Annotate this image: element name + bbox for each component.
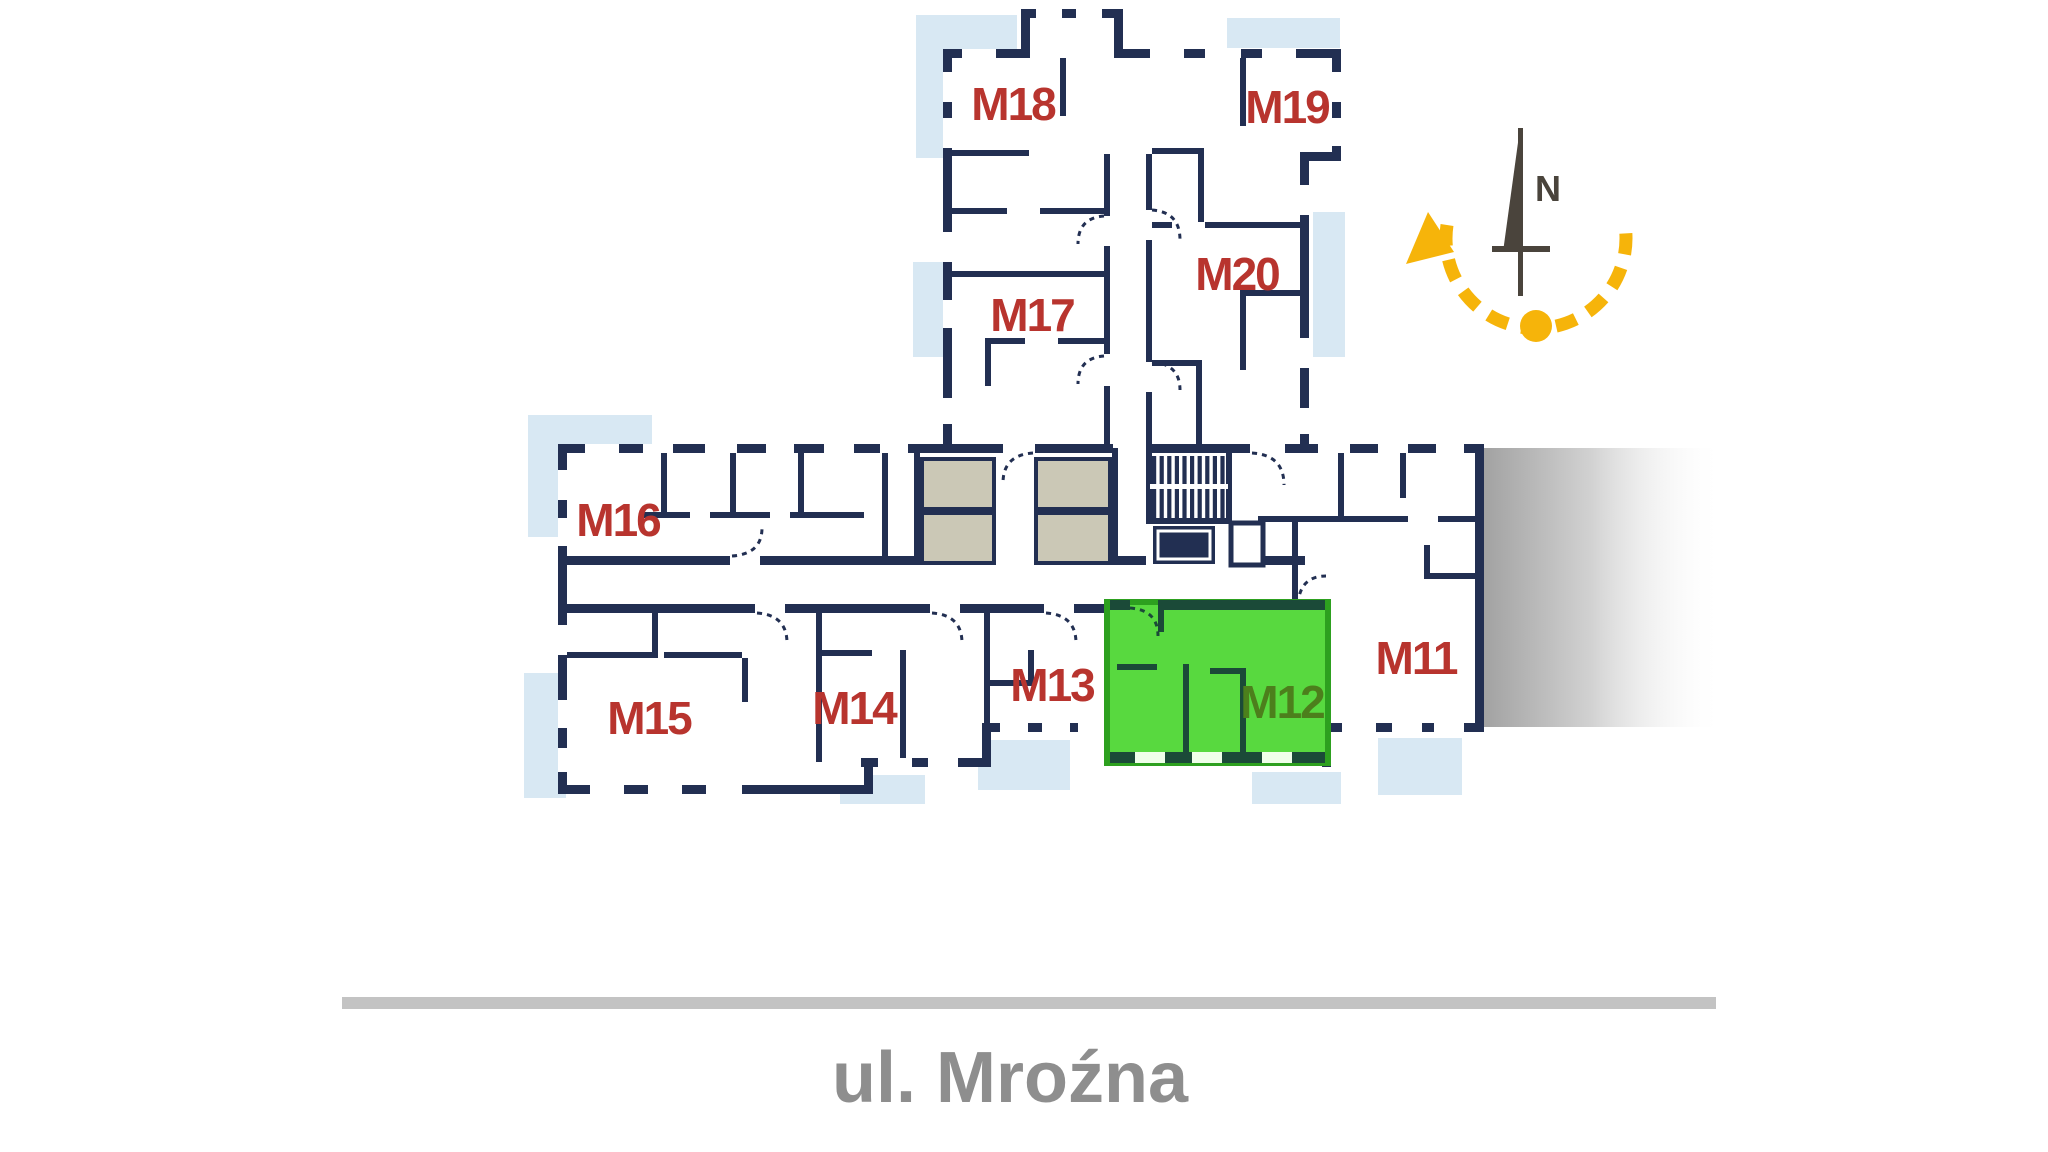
- floor-plan-page: M18 M19 M17 M20 M16 M15 M14 M13 M12 M11 …: [0, 0, 2048, 1152]
- elevator-shaft: [1036, 513, 1110, 563]
- street-name: ul. Mroźna: [832, 1038, 1189, 1118]
- balcony: [1378, 738, 1462, 795]
- unit-label-m18[interactable]: M18: [971, 78, 1056, 130]
- compass-dot: [1520, 310, 1552, 342]
- balcony: [1313, 212, 1345, 357]
- unit-label-m12[interactable]: M12: [1240, 676, 1324, 728]
- north-label: N: [1535, 168, 1561, 209]
- elevator-shaft: [1036, 459, 1110, 509]
- balcony: [913, 262, 943, 357]
- compass: N: [1406, 128, 1626, 342]
- street-line: [342, 997, 1716, 1009]
- unit-label-m16[interactable]: M16: [576, 494, 660, 546]
- elevator-cab-icon: [1153, 523, 1263, 565]
- floor-plan: M18 M19 M17 M20 M16 M15 M14 M13 M12 M11 …: [0, 0, 2048, 1152]
- balcony: [1252, 772, 1341, 804]
- building-shadow: [1484, 448, 1724, 727]
- elevator-shaft: [922, 513, 994, 563]
- street: ul. Mroźna: [342, 997, 1716, 1118]
- unit-label-m15[interactable]: M15: [607, 692, 692, 744]
- unit-label-m13[interactable]: M13: [1010, 659, 1094, 711]
- unit-label-m11[interactable]: M11: [1376, 632, 1458, 684]
- unit-label-m17[interactable]: M17: [990, 289, 1074, 341]
- unit-label-m14[interactable]: M14: [812, 682, 898, 734]
- unit-label-m20[interactable]: M20: [1195, 248, 1279, 300]
- unit-label-m19[interactable]: M19: [1245, 81, 1329, 133]
- elevator-shaft: [922, 459, 994, 509]
- balcony: [978, 740, 1070, 790]
- balcony: [1227, 18, 1340, 48]
